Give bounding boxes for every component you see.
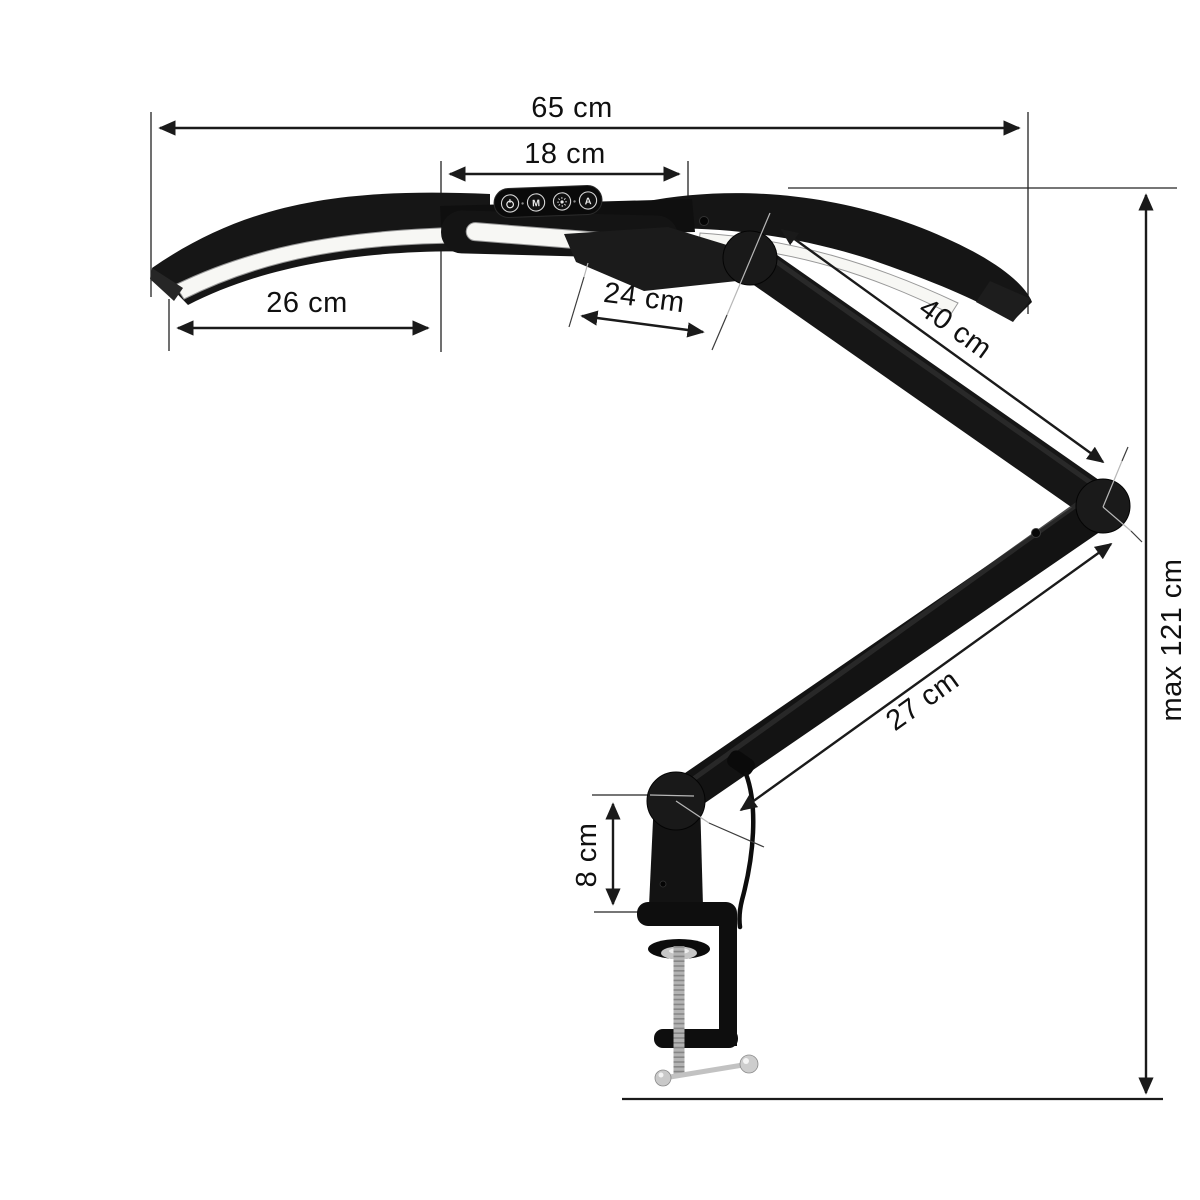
extension-line-head-depth-tail	[712, 315, 727, 350]
power-cable	[739, 774, 753, 927]
dimension-left-lamp-length: 26 cm	[178, 287, 428, 328]
handle-ball-right-shine	[743, 1058, 749, 1064]
upper-arm-highlight	[760, 250, 1094, 485]
product-dimension-diagram: M A	[0, 0, 1200, 1200]
dimension-line-head-depth	[582, 316, 703, 332]
power-button	[501, 195, 519, 213]
clamp-handle-ball-right	[740, 1055, 758, 1073]
dimension-label-left-lamp-length: 26 cm	[266, 287, 347, 319]
dimension-label-clamp-height: 8 cm	[571, 823, 603, 888]
bracket-screw	[700, 217, 709, 226]
table-clamp	[637, 902, 758, 1086]
shoulder-joint	[723, 231, 777, 285]
dimension-lower-arm: 27 cm	[741, 544, 1111, 810]
dimension-label-head-width: 18 cm	[524, 138, 605, 170]
control-panel: M A	[494, 185, 603, 218]
dimension-clamp-height: 8 cm	[571, 804, 613, 904]
clamp-bottom-bar	[654, 1029, 738, 1048]
dimension-label-total-width: 65 cm	[531, 92, 612, 124]
auto-button-label: A	[584, 196, 591, 207]
dimension-label-max-height: max 121 cm	[1156, 559, 1188, 722]
extension-line-elbow-upper-tail	[1122, 447, 1128, 461]
post-screw	[660, 881, 666, 887]
mode-button-label: M	[532, 198, 540, 209]
dimension-line-lower-arm	[741, 544, 1111, 810]
dimension-max-height: max 121 cm	[1146, 195, 1188, 1093]
dimension-head-width: 18 cm	[450, 138, 679, 174]
clamp-right-bar	[719, 913, 737, 1046]
lower-arm-highlight	[692, 498, 1086, 780]
handle-ball-left-shine	[659, 1073, 664, 1078]
extension-line-base-joint-tail	[709, 823, 764, 847]
extension-line-elbow-lower-tail	[1131, 531, 1142, 542]
lamp-diagram-canvas: M A	[0, 0, 1200, 1200]
dimension-total-width: 65 cm	[160, 92, 1019, 128]
clamp-handle-ball-left	[655, 1070, 671, 1086]
extension-line-head-depth-left-tail	[569, 277, 584, 327]
arm-screw	[1032, 529, 1041, 538]
